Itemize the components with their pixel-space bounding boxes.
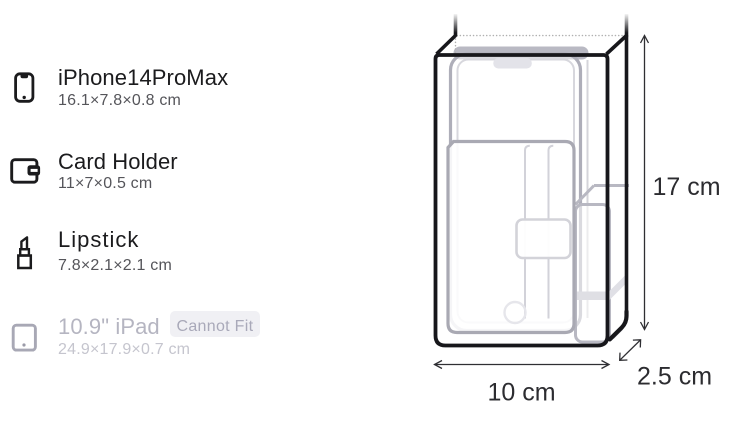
svg-text:2.5 cm: 2.5 cm bbox=[637, 363, 712, 391]
svg-text:10 cm: 10 cm bbox=[487, 379, 555, 407]
svg-text:17 cm: 17 cm bbox=[653, 173, 721, 201]
